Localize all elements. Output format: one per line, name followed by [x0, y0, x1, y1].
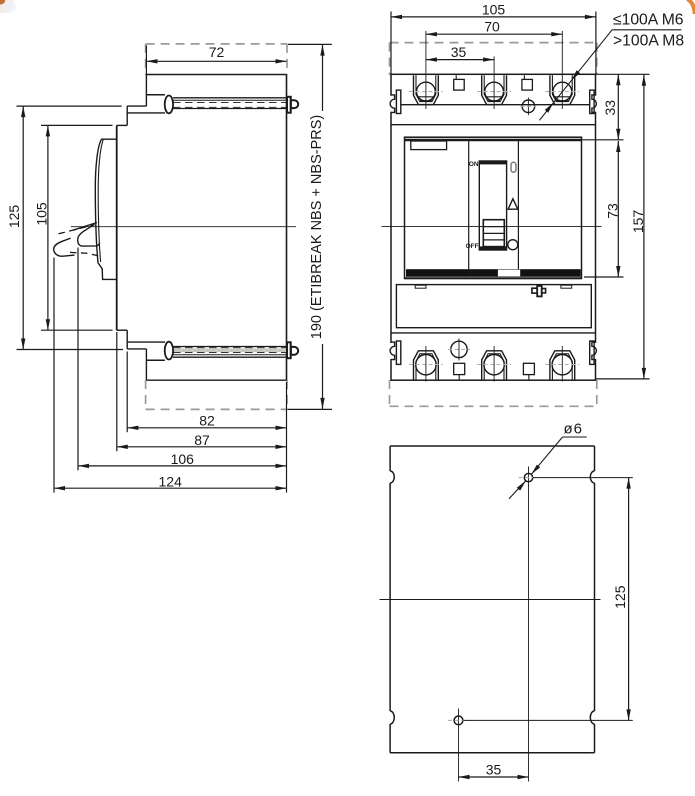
svg-text:70: 70 [484, 19, 500, 35]
svg-text:73: 73 [605, 203, 621, 219]
svg-text:190 (ETIBREAK NBS + NBS-PRS): 190 (ETIBREAK NBS + NBS-PRS) [309, 115, 325, 339]
svg-text:72: 72 [209, 44, 225, 60]
svg-text:124: 124 [159, 474, 183, 490]
svg-text:35: 35 [451, 44, 467, 60]
svg-text:ON: ON [469, 161, 479, 168]
svg-text:OFF: OFF [466, 243, 479, 250]
svg-text:35: 35 [486, 762, 502, 778]
svg-text:125: 125 [6, 205, 22, 229]
svg-text:125: 125 [612, 585, 628, 609]
svg-text:ø6: ø6 [564, 421, 584, 438]
svg-text:ETI: ETI [468, 272, 478, 278]
svg-text:157: 157 [630, 210, 646, 234]
svg-text:>100A M8: >100A M8 [613, 32, 684, 49]
svg-text:82: 82 [199, 413, 215, 429]
svg-text:105: 105 [33, 202, 49, 226]
svg-text:≤100A M6: ≤100A M6 [613, 11, 684, 28]
svg-text:33: 33 [602, 100, 618, 116]
svg-text:105: 105 [482, 2, 506, 18]
svg-text:87: 87 [194, 432, 210, 448]
svg-text:106: 106 [171, 451, 195, 467]
